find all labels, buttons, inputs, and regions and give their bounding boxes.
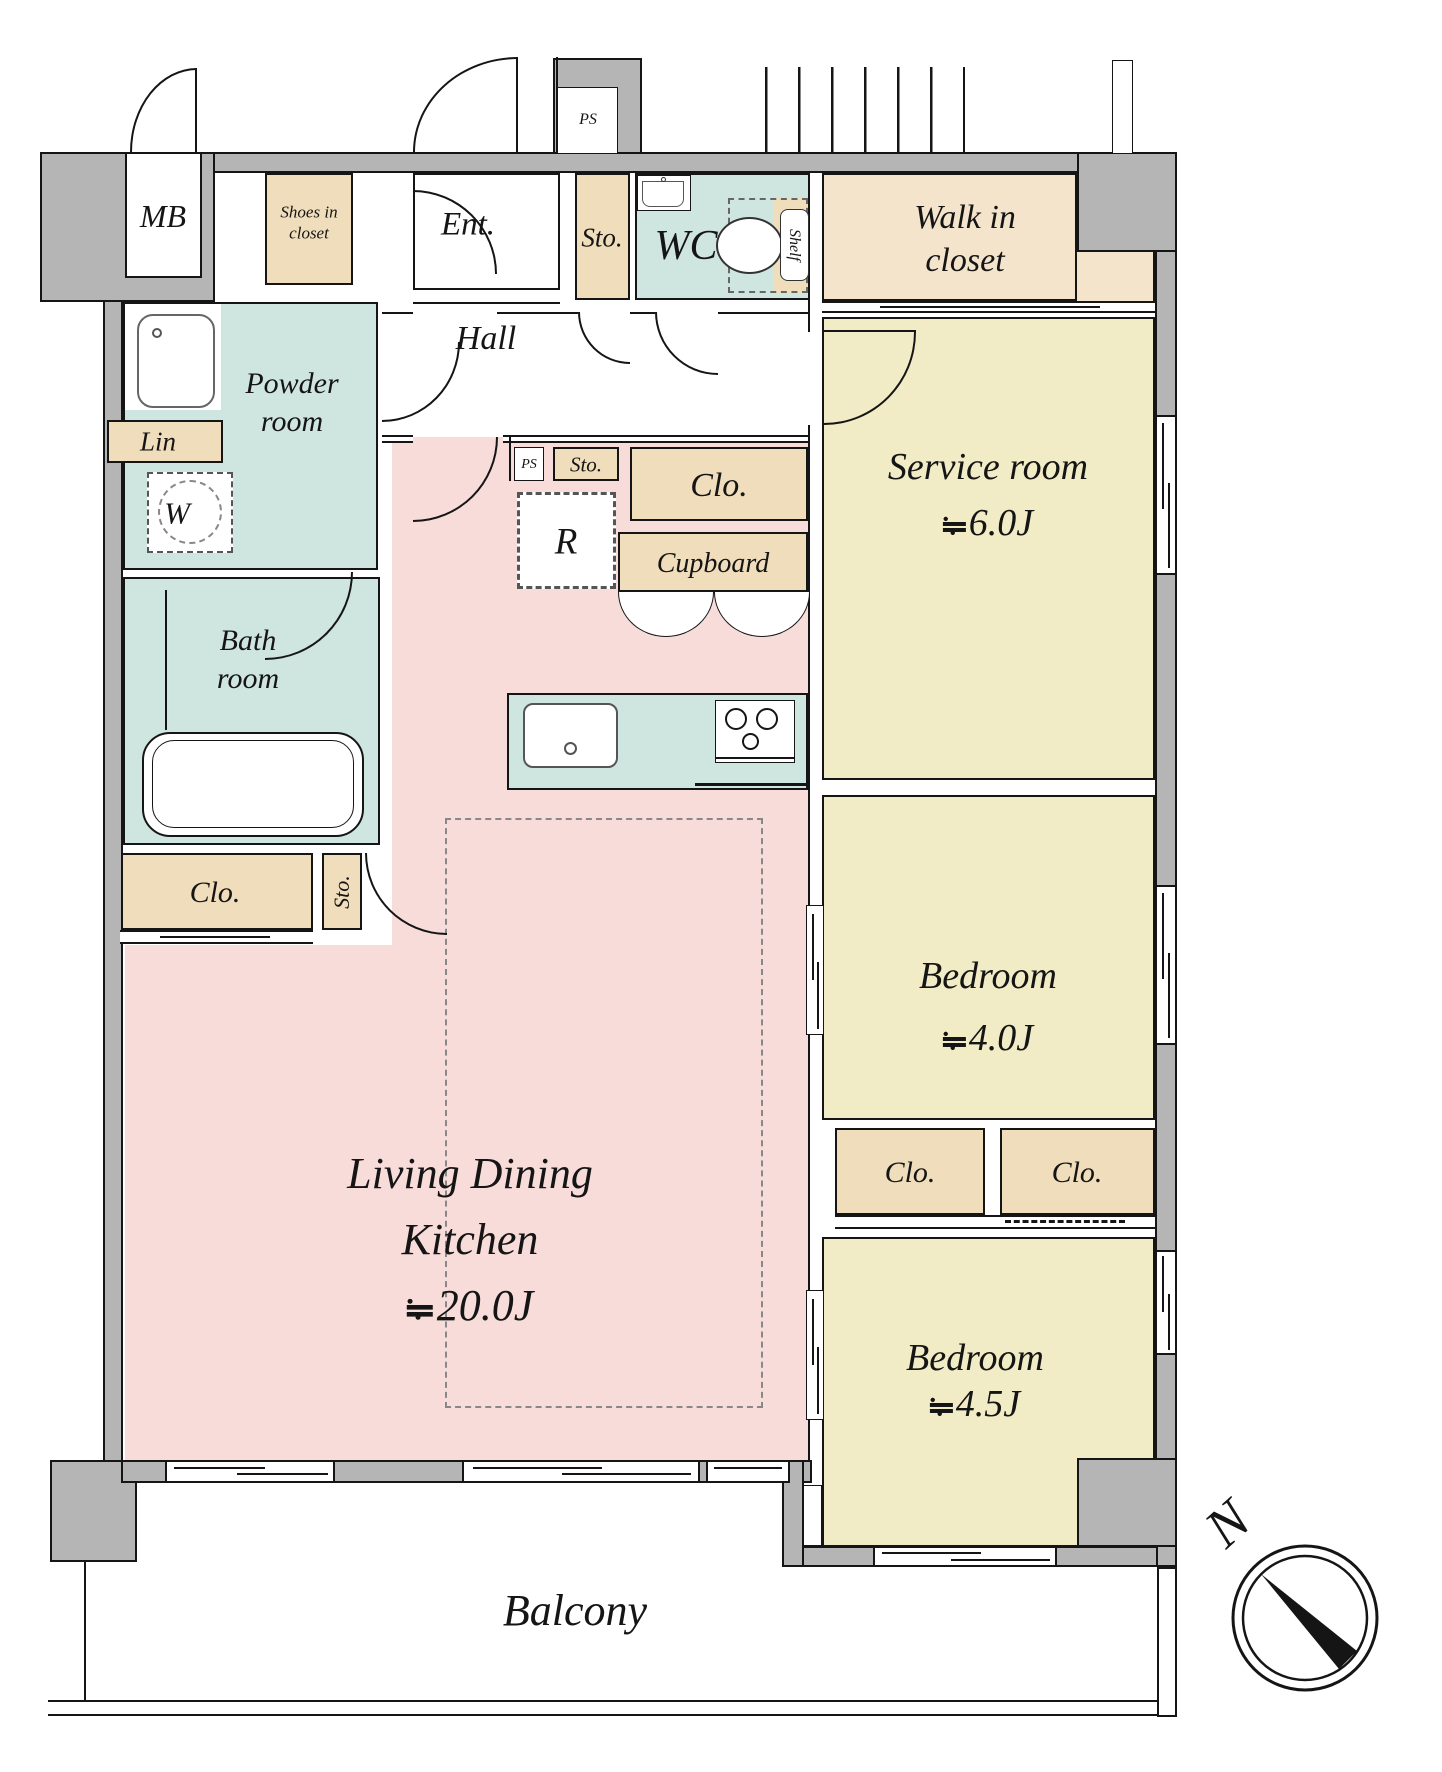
label-closet-left: Clo. — [190, 878, 241, 908]
label-closet-a: Clo. — [885, 1158, 936, 1188]
label-cupboard: Cupboard — [657, 550, 770, 578]
kitchen-sink — [523, 703, 618, 768]
side-window-slit — [803, 1485, 822, 1546]
door-mb — [130, 68, 197, 152]
wall-top — [213, 152, 1177, 173]
wall-topright-corner — [1077, 152, 1177, 252]
label-ldk-area: 20.0J — [407, 1284, 533, 1328]
label-service-name: Service room — [888, 448, 1088, 486]
label-bedroom45-name: Bedroom — [906, 1339, 1044, 1377]
room-ldk-west — [125, 945, 395, 1460]
hall-top-line-2 — [497, 312, 578, 314]
wall-under-hall-left — [382, 435, 413, 443]
label-hall: Hall — [456, 322, 516, 356]
room-walkin-closet-ext — [1075, 250, 1155, 303]
approx-equal-symbol — [930, 1397, 953, 1417]
label-service-area: 6.0J — [943, 504, 1033, 542]
label-wic-2: closet — [925, 244, 1004, 278]
label-closet-center: Clo. — [690, 469, 748, 503]
balcony-edge-outer — [48, 1700, 1177, 1702]
entrance-step-line — [413, 302, 560, 304]
compass-icon — [1222, 1535, 1388, 1701]
floor-plan: N MB Shoes in closet Ent. Sto. PS WC She… — [0, 0, 1442, 1772]
door-entrance-jamb — [556, 57, 558, 152]
wc-sink-basin — [642, 181, 684, 207]
sliding-door-bedroom-40 — [806, 905, 824, 1035]
label-bedroom45-area: 4.5J — [930, 1385, 1020, 1423]
door-wc — [655, 312, 718, 375]
label-closet-b: Clo. — [1052, 1158, 1103, 1188]
label-powder-1: Powder — [245, 369, 338, 399]
label-shoes-2: closet — [289, 225, 329, 242]
balcony-left-rail — [84, 1560, 86, 1702]
window-service — [1155, 415, 1177, 575]
door-storage-left — [365, 853, 447, 935]
label-ldk-2: Kitchen — [402, 1218, 539, 1262]
wc-sink-faucet-icon — [661, 177, 666, 182]
label-powder-2: room — [261, 407, 323, 437]
top-railing — [765, 67, 965, 152]
wall-center-right-1 — [808, 300, 822, 332]
bathtub-inner — [152, 740, 354, 828]
label-linen: Lin — [140, 429, 176, 456]
label-balcony: Balcony — [503, 1589, 647, 1633]
window-bedroom-45 — [1155, 1250, 1177, 1355]
hall-top-line-4 — [718, 312, 810, 314]
label-shelf: Shelf — [786, 229, 802, 261]
burner-icon-3 — [742, 733, 759, 750]
label-bedroom40-area: 4.0J — [943, 1019, 1033, 1057]
balcony-right-wall — [1157, 1567, 1177, 1717]
hall-top-line-3 — [630, 312, 655, 314]
label-bath-2: room — [217, 664, 279, 694]
bath-partition — [165, 590, 167, 730]
stove — [715, 700, 795, 763]
balcony-edge-inner — [48, 1714, 1177, 1716]
door-storage-top — [578, 312, 630, 364]
label-storage-left: Sto. — [331, 875, 353, 909]
kitchen-sink-drain-icon — [564, 742, 577, 755]
window-ldk-2 — [462, 1460, 700, 1483]
room-walkin-closet — [822, 173, 1077, 301]
wall-bottomright-block — [1077, 1458, 1177, 1547]
approx-equal-symbol — [943, 1031, 966, 1051]
window-ldk-1 — [165, 1460, 335, 1483]
approx-equal-symbol — [943, 516, 966, 536]
door-powder — [382, 342, 460, 422]
wall-under-hall — [503, 435, 822, 443]
counter-edge-line — [695, 783, 807, 786]
approx-equal-symbol — [407, 1298, 433, 1321]
door-service-leaf — [824, 330, 916, 332]
label-ldk-1: Living Dining — [347, 1152, 593, 1196]
powder-sink-faucet-icon — [152, 328, 162, 338]
label-storage-top: Sto. — [581, 225, 622, 252]
sliding-door-bedroom-45 — [806, 1290, 824, 1420]
powder-sink — [137, 314, 215, 408]
door-entrance — [413, 57, 518, 152]
label-mb: MB — [140, 200, 186, 232]
hall-top-line-1 — [382, 312, 413, 314]
label-entrance: Ent. — [441, 209, 495, 242]
stove-base-line — [715, 757, 795, 759]
label-bedroom40-name: Bedroom — [919, 957, 1057, 995]
label-bath-1: Bath — [220, 626, 277, 656]
label-fridge: R — [555, 524, 578, 561]
wic-sliding-track — [880, 306, 1100, 308]
burner-icon-1 — [725, 708, 747, 730]
burner-icon-2 — [756, 708, 778, 730]
label-ps-shaft: PS — [579, 112, 597, 128]
closet-row-track — [1005, 1220, 1125, 1223]
label-ps-small: PS — [521, 458, 537, 472]
wall-left — [103, 300, 123, 1462]
wall-stub — [509, 435, 511, 481]
label-washer: W — [164, 498, 190, 529]
closet-left-track — [160, 936, 270, 938]
window-bedroom-bottom — [873, 1546, 1057, 1567]
label-storage-small: Sto. — [570, 455, 602, 476]
window-ldk-3 — [706, 1460, 790, 1483]
top-right-pillar — [1112, 60, 1133, 154]
label-wic-1: Walk in — [914, 201, 1016, 235]
label-shoes-1: Shoes in — [280, 204, 337, 221]
door-entrance-leaf — [516, 57, 518, 152]
toilet-icon — [716, 217, 783, 274]
label-wc: WC — [655, 225, 718, 267]
window-bedroom-40 — [1155, 885, 1177, 1045]
door-mb-leaf — [195, 68, 197, 154]
